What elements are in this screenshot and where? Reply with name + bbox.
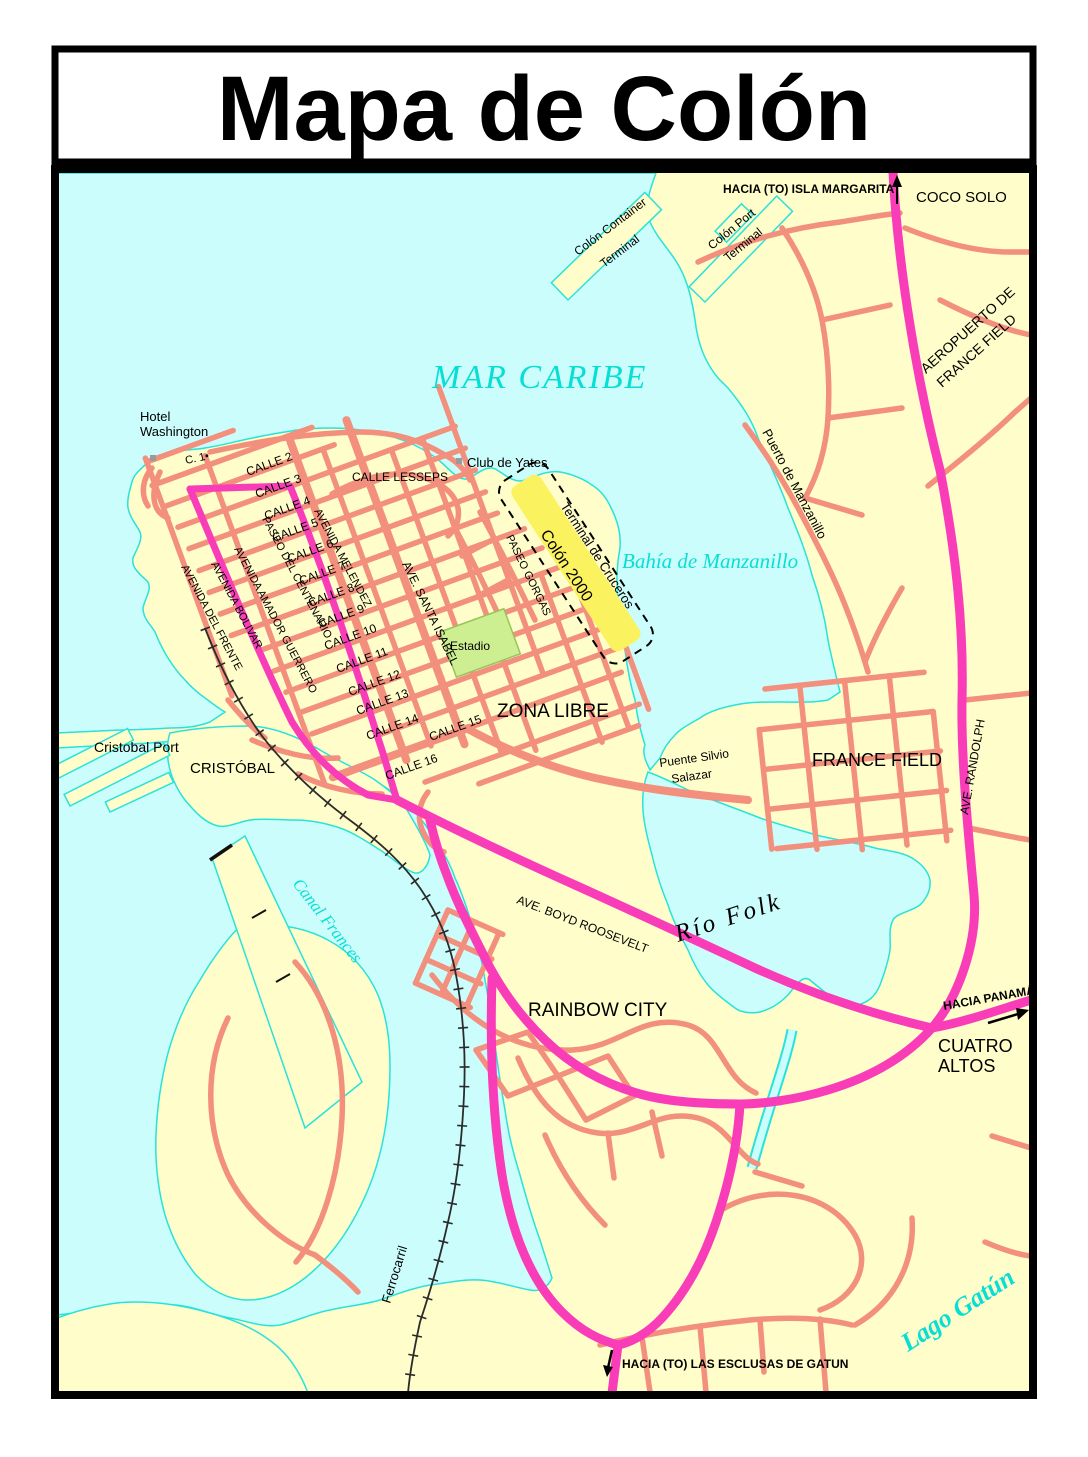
title-box: Mapa de Colón: [55, 49, 1033, 162]
hotel-washington-marker: [150, 455, 156, 461]
label-mar-caribe: MAR CARIBE: [431, 359, 647, 396]
label-cristobal: CRISTÓBAL: [190, 760, 275, 777]
label-hotel-washington-1: Hotel: [140, 409, 170, 424]
label-hotel-washington-2: Washington: [140, 424, 208, 439]
club-de-yates-marker: [456, 458, 462, 464]
label-hacia-esclusas: HACIA (TO) LAS ESCLUSAS DE GATUN: [622, 1357, 848, 1371]
label-club-de-yates: Club de Yates: [467, 455, 548, 470]
label-calle-lesseps: CALLE LESSEPS: [352, 470, 448, 484]
label-zona-libre: ZONA LIBRE: [497, 701, 609, 722]
label-hacia-isla-margarita: HACIA (TO) ISLA MARGARITA: [723, 182, 895, 196]
label-bahia-manzanillo: Bahía de Manzanillo: [622, 549, 798, 573]
label-cristobal-port: Cristobal Port: [94, 739, 179, 755]
map-canvas: Mapa de Colón: [0, 0, 1088, 1457]
label-coco-solo: COCO SOLO: [916, 189, 1007, 206]
label-cuatro-altos-2: ALTOS: [938, 1056, 995, 1076]
label-france-field: FRANCE FIELD: [812, 750, 942, 770]
label-cuatro-altos-1: CUATRO: [938, 1036, 1013, 1056]
map-page: Mapa de Colón: [0, 0, 1088, 1457]
label-rainbow-city: RAINBOW CITY: [528, 1000, 668, 1021]
page-title: Mapa de Colón: [217, 58, 871, 160]
